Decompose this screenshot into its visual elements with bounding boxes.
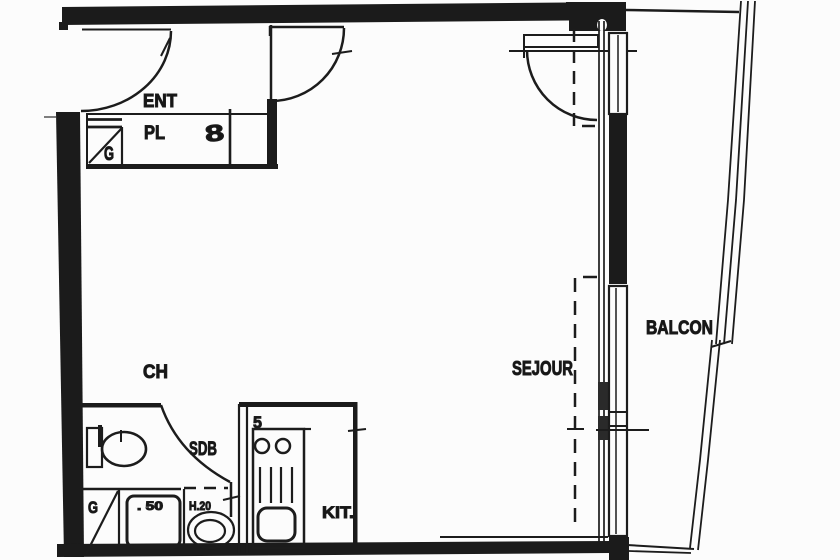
svg-text:SEJOUR: SEJOUR bbox=[512, 358, 573, 380]
svg-text:CH: CH bbox=[143, 362, 168, 383]
svg-text:BALCON: BALCON bbox=[646, 318, 713, 339]
svg-text:PL: PL bbox=[144, 123, 165, 144]
svg-text:SDB: SDB bbox=[189, 439, 217, 460]
svg-text:. 50: . 50 bbox=[137, 501, 163, 513]
svg-text:G: G bbox=[104, 144, 114, 165]
svg-text:G: G bbox=[88, 498, 98, 517]
svg-text:ENT: ENT bbox=[143, 91, 177, 111]
svg-text:8: 8 bbox=[204, 119, 226, 147]
svg-text:KIT.: KIT. bbox=[322, 503, 354, 522]
